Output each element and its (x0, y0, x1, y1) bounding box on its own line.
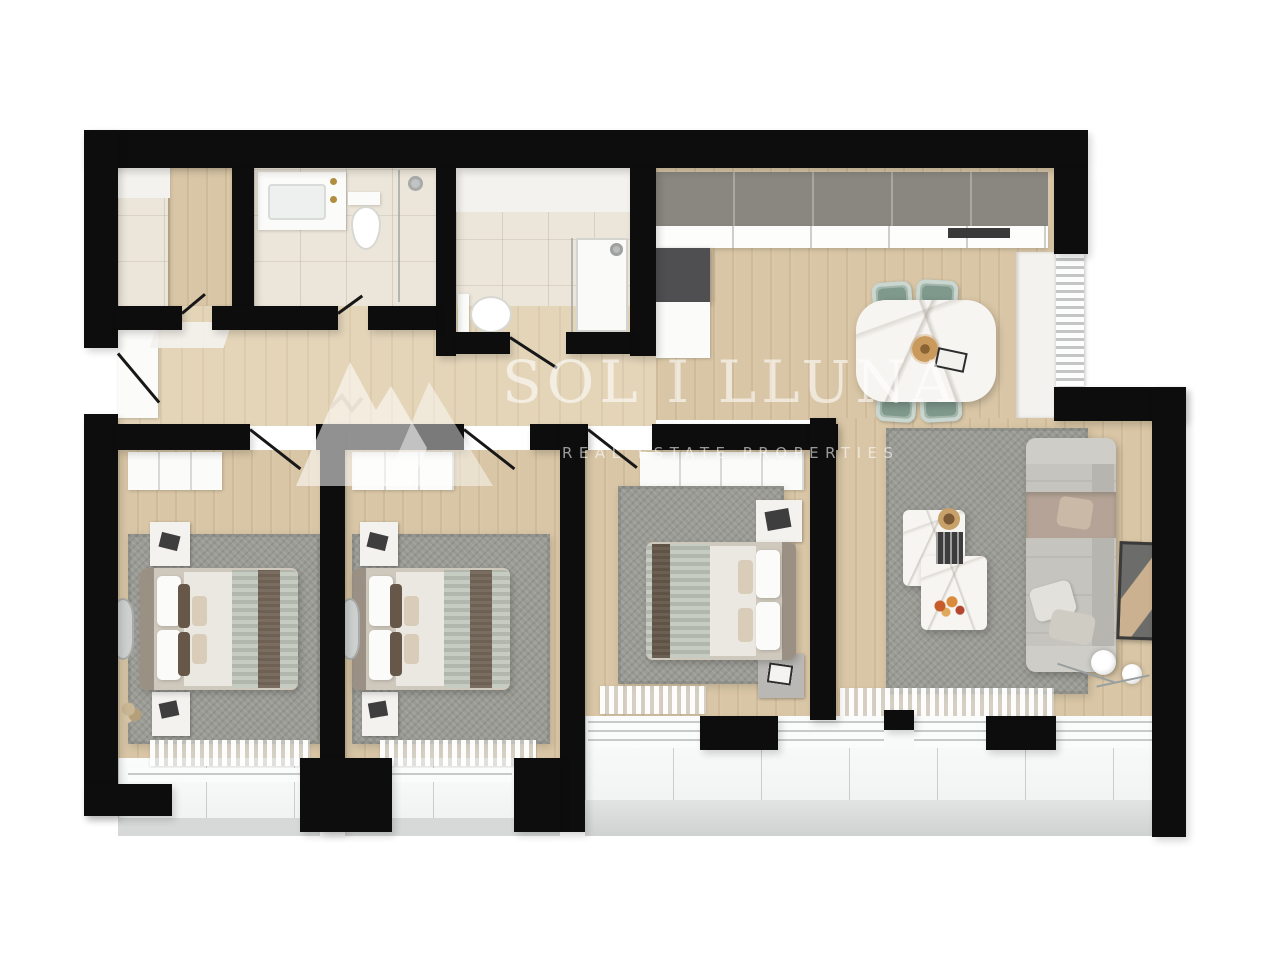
bed-accent-pillow (390, 632, 402, 676)
terrace-door-sill (778, 716, 884, 748)
bed-accent-pillow (404, 596, 419, 626)
bed-headboard (140, 568, 154, 690)
sofa-pillow (1056, 496, 1094, 531)
shower-glass (571, 238, 573, 332)
plant (118, 698, 144, 726)
faucet-icon (330, 196, 337, 203)
wall-bedrooms-top-a (116, 424, 250, 450)
shower-head-icon (610, 243, 623, 256)
bed-pillow (756, 550, 780, 598)
floor-lamp-globe (1091, 650, 1116, 675)
bed-accent-pillow (738, 560, 753, 594)
nightstand-tray (767, 662, 794, 685)
wall-terrace-a (700, 716, 778, 750)
bed-accent-pillow (738, 608, 753, 642)
wall-exterior-right (1152, 387, 1186, 837)
wall-hall-top-b (212, 306, 338, 330)
toilet-tank (348, 192, 380, 205)
vanity-sink (268, 184, 326, 220)
terrace-door-sill (914, 716, 986, 748)
table-tray (936, 532, 963, 564)
wall-bath1-bath2 (436, 168, 456, 356)
wall-hall-top-c (368, 306, 436, 330)
wall-terrace-pillar (884, 710, 914, 730)
cooker-hood (948, 228, 1010, 238)
wall-utility-bath1 (232, 168, 254, 308)
wall-bath2-bottom-b (566, 332, 630, 354)
balcony-door-sill (128, 768, 304, 782)
utility-wall-face (118, 168, 170, 198)
wall-bath2-kitchen (630, 168, 656, 356)
wall-balcony-divider-a (300, 758, 392, 832)
bed-accent-pillow (192, 596, 207, 626)
wall-exterior-bottom-left (84, 784, 172, 816)
wall-exterior-right-upper (1054, 168, 1088, 254)
bed-accent-pillow (178, 584, 190, 628)
wall-exterior-left-upper (84, 130, 118, 348)
wall-exterior-left-lower (84, 414, 118, 816)
bed-throw (652, 544, 670, 658)
utility-wardrobe (168, 168, 232, 308)
wall-bedroom2-bedroom3 (560, 424, 585, 832)
wardrobe (640, 452, 804, 490)
sofa-back-cushion (1092, 446, 1114, 664)
bathroom-2-wall-face (456, 168, 630, 212)
table-centerpiece (910, 334, 940, 364)
bedroom-2-curtain (380, 740, 536, 766)
living-curtain (840, 688, 1054, 716)
kitchen-base-cabinet (656, 302, 710, 358)
terrace-edge (585, 800, 1152, 836)
bed-accent-pillow (390, 584, 402, 628)
table-flowers (928, 592, 968, 620)
bedroom-3-curtain (600, 686, 706, 714)
bed-throw (470, 570, 492, 688)
wardrobe (128, 452, 222, 490)
floor-plan-render: SOL I LLUNA REAL ESTATE PROPERTIES (0, 0, 1280, 960)
bed-headboard (782, 542, 796, 660)
bedroom-1-curtain (150, 740, 310, 766)
terrace-door-sill (588, 716, 700, 748)
balcony-1-edge (118, 818, 320, 836)
window-blinds (1056, 252, 1084, 386)
sofa-armrest (1026, 438, 1116, 464)
bed-accent-pillow (192, 634, 207, 664)
tray-bowl (938, 508, 960, 530)
shower-glass (398, 170, 400, 302)
toilet-bowl (470, 296, 512, 333)
terrace-door-sill (1056, 716, 1152, 748)
nightstand-tray (368, 701, 388, 719)
bed-throw (258, 570, 280, 688)
bed-accent-pillow (178, 632, 190, 676)
fridge (656, 248, 710, 302)
faucet-icon (330, 178, 337, 185)
shower-head-icon (408, 176, 423, 191)
wall-hall-top-a (116, 306, 182, 330)
toilet-tank (458, 294, 469, 332)
kitchen-pantry-face (1016, 252, 1056, 418)
wall-terrace-b (986, 716, 1056, 750)
wardrobe (352, 452, 454, 490)
bed-accent-pillow (404, 634, 419, 664)
kitchen-upper-cabinets (656, 172, 1048, 226)
wall-bath2-bottom-a (456, 332, 510, 354)
wall-balcony-divider-b (514, 758, 560, 832)
wall-bedroom3-living (810, 418, 836, 720)
bed-pillow (756, 602, 780, 650)
wall-exterior-top (84, 130, 1088, 168)
